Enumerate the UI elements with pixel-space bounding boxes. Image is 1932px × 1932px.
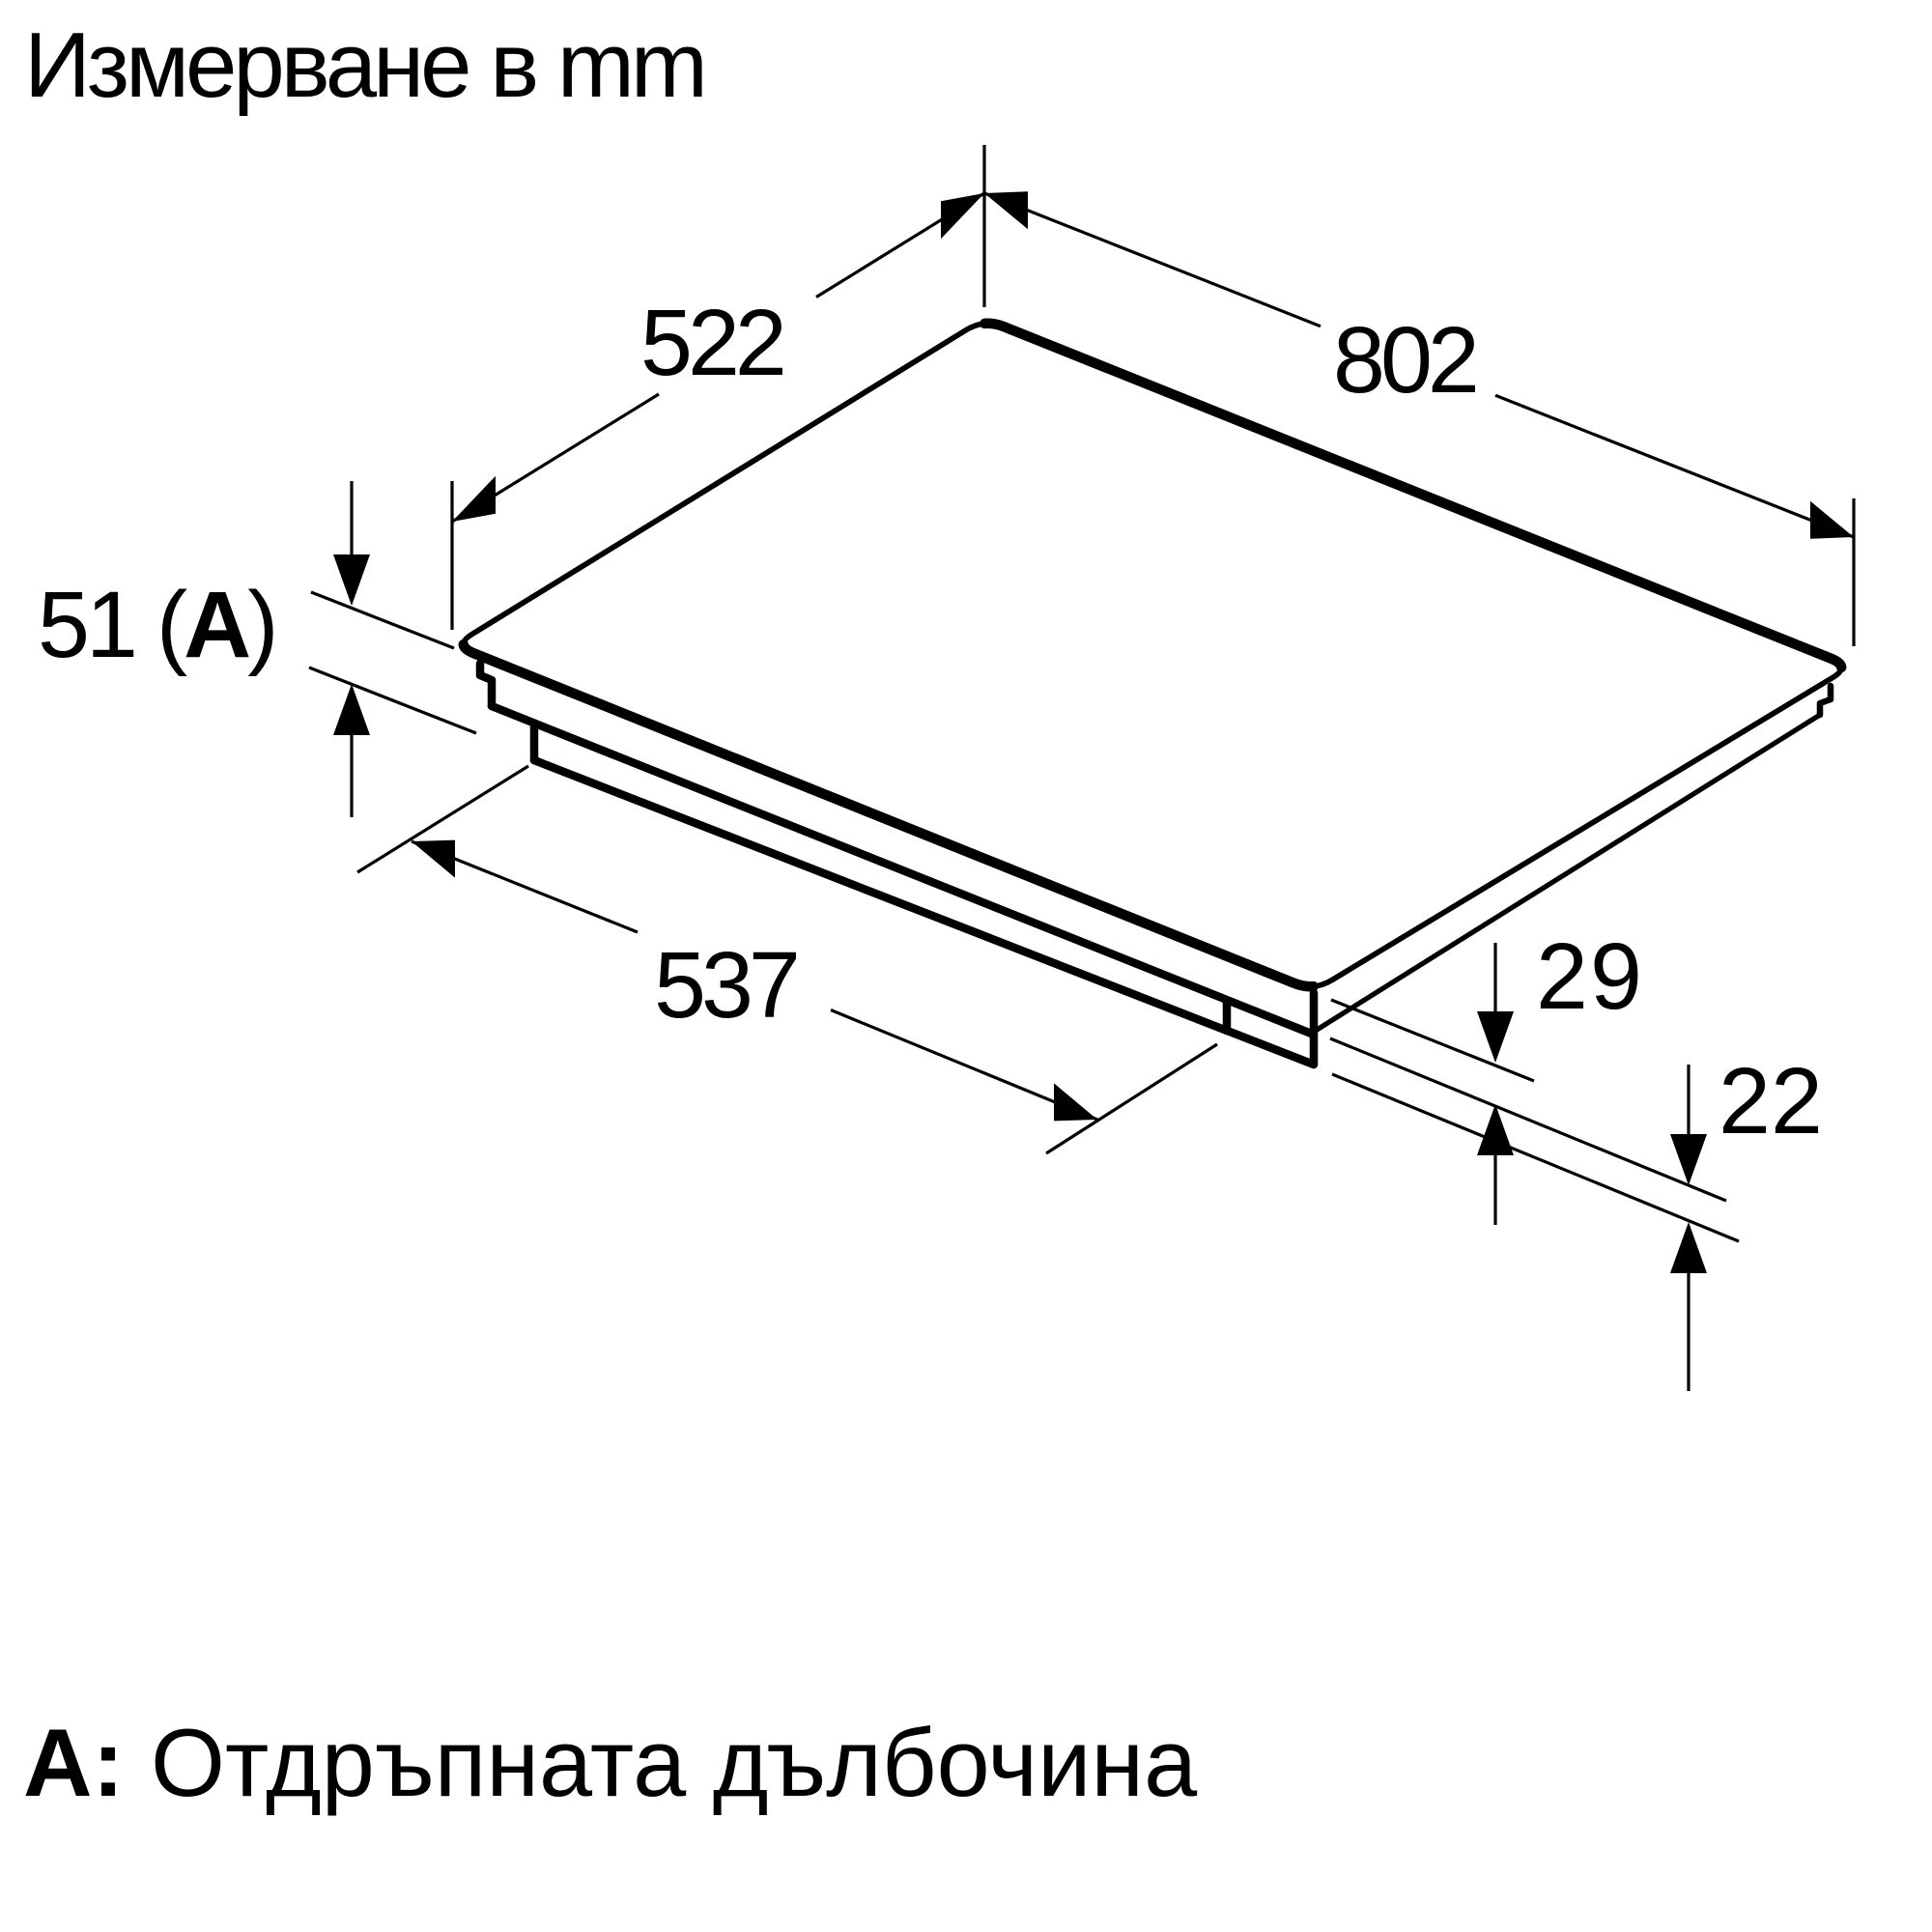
svg-text:537: 537 bbox=[654, 932, 797, 1037]
svg-text:29: 29 bbox=[1536, 923, 1644, 1029]
svg-text:22: 22 bbox=[1719, 1048, 1823, 1153]
svg-text:802: 802 bbox=[1333, 307, 1476, 412]
svg-text:51 (A): 51 (A) bbox=[38, 572, 275, 677]
svg-text:522: 522 bbox=[640, 290, 783, 395]
